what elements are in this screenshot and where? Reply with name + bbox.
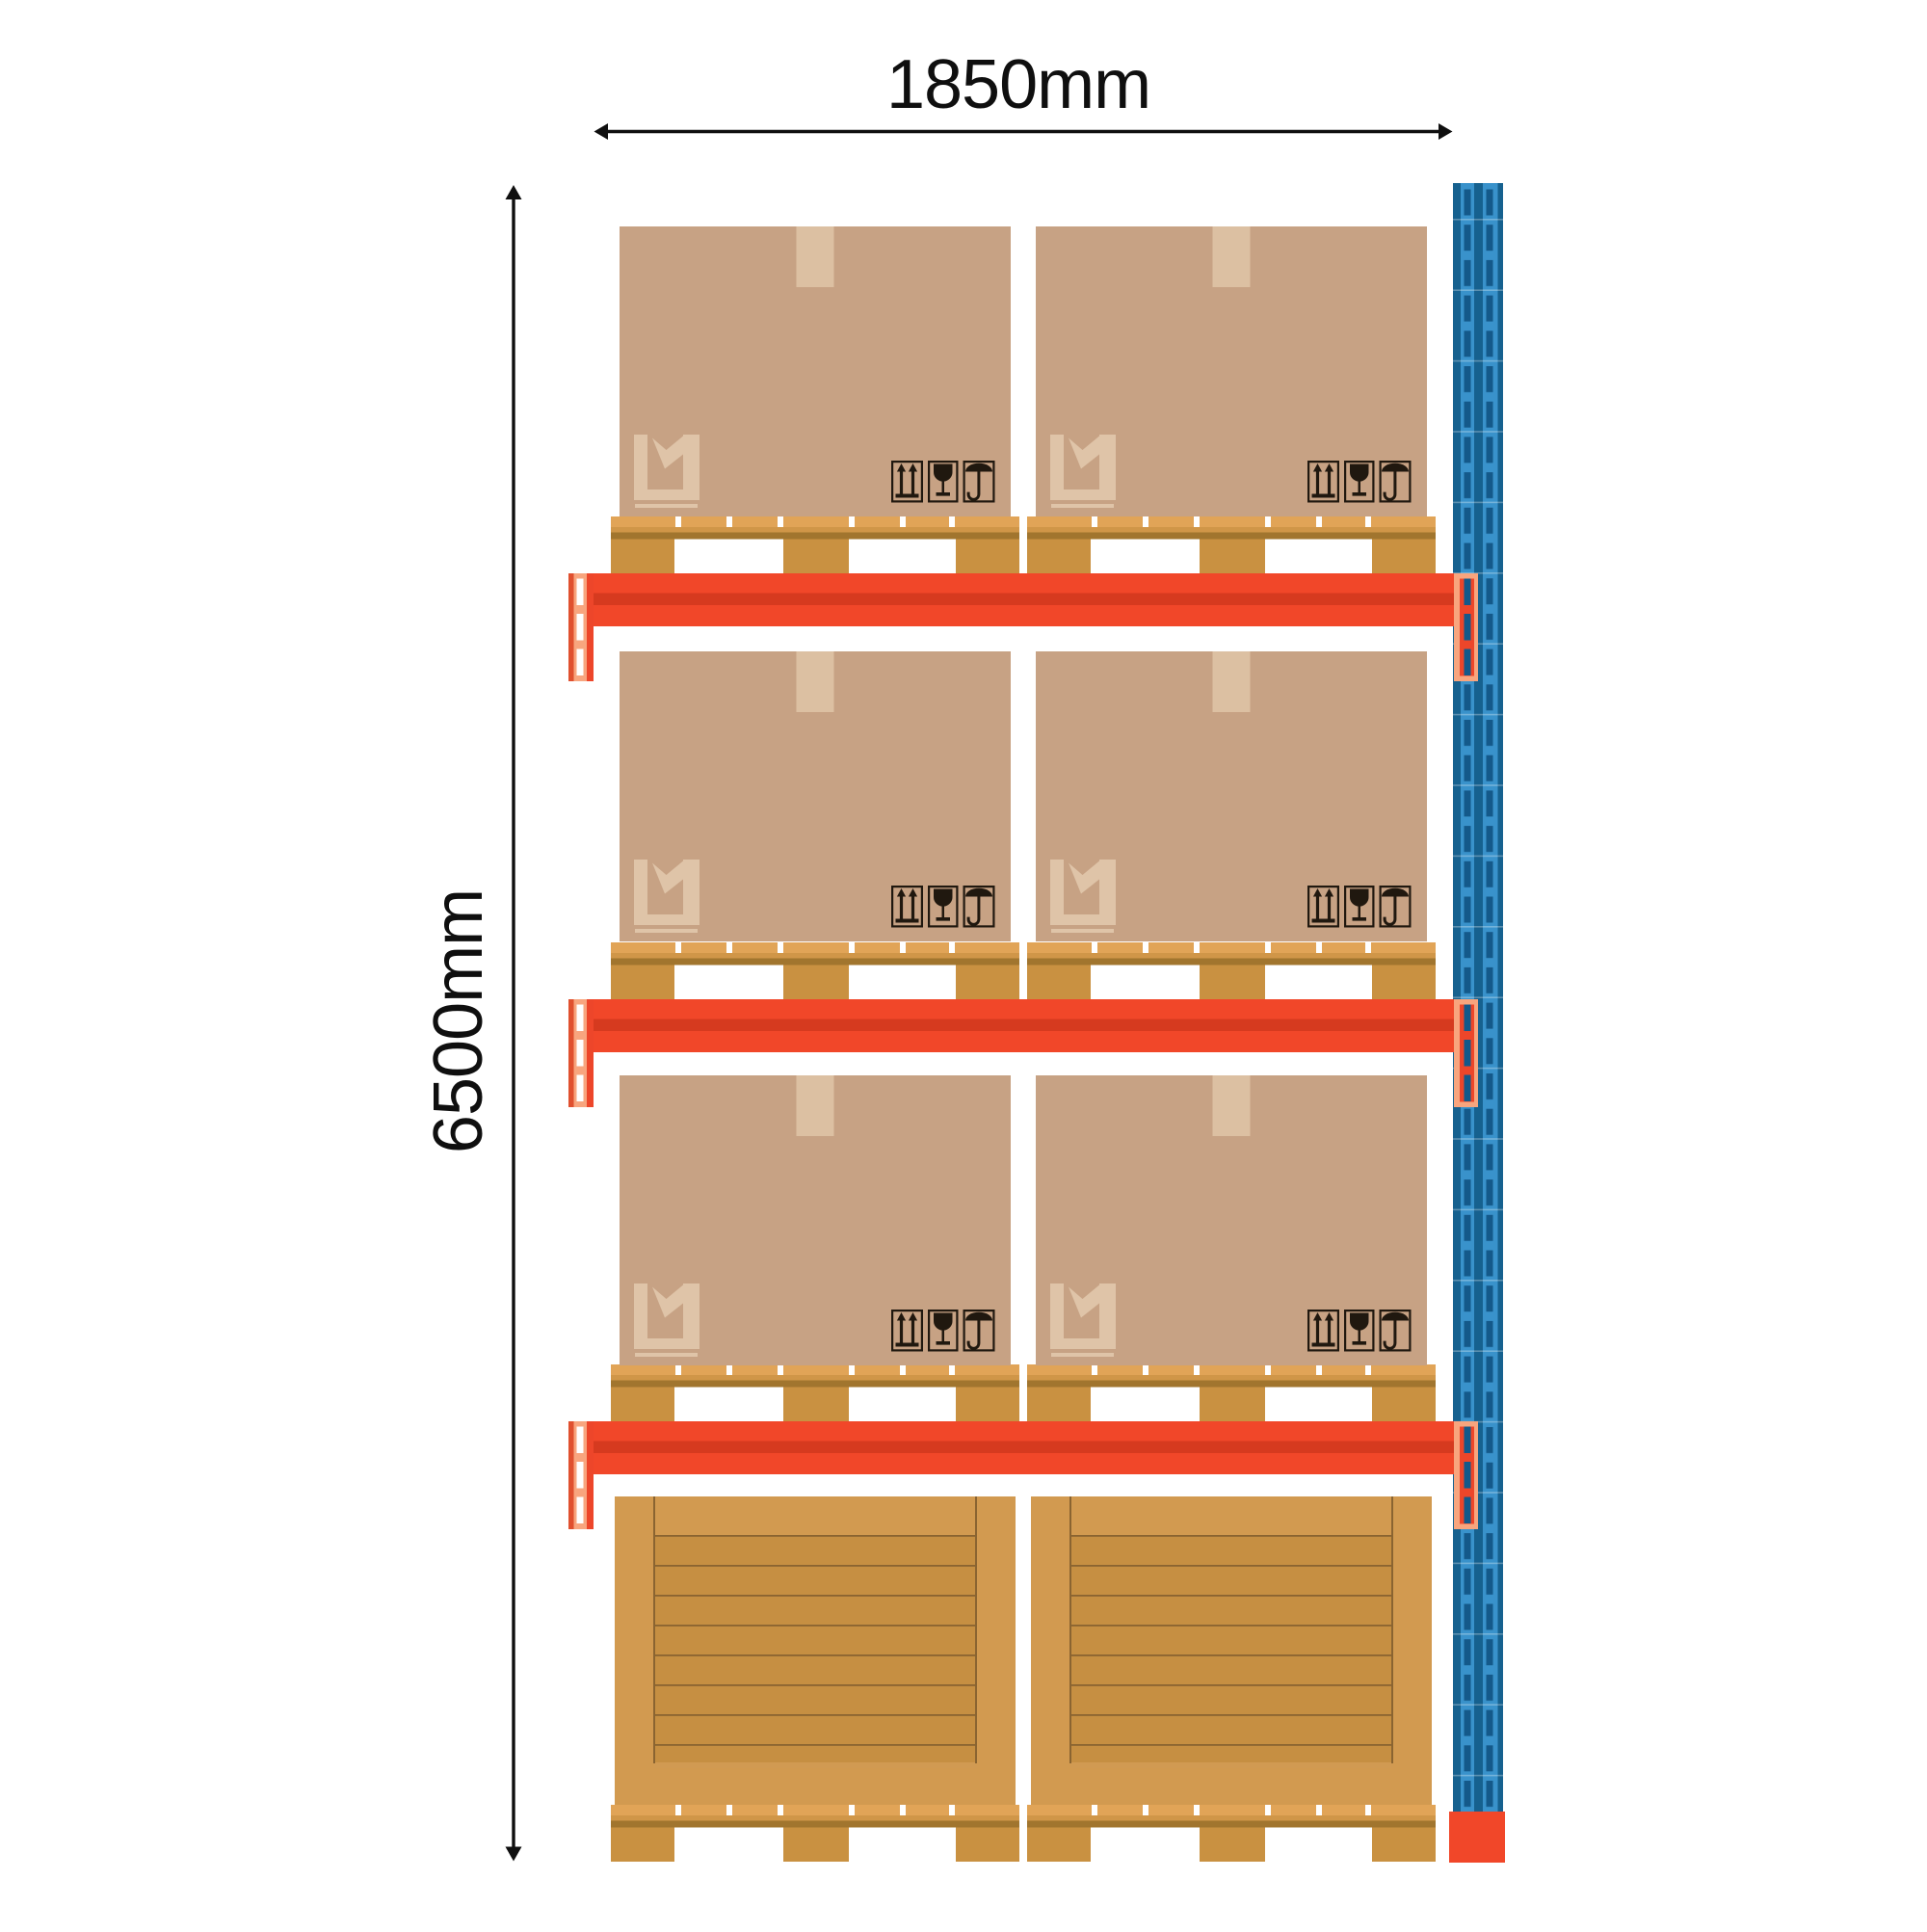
svg-text:6500mm: 6500mm [420,889,497,1153]
svg-text:1850mm: 1850mm [886,46,1150,123]
